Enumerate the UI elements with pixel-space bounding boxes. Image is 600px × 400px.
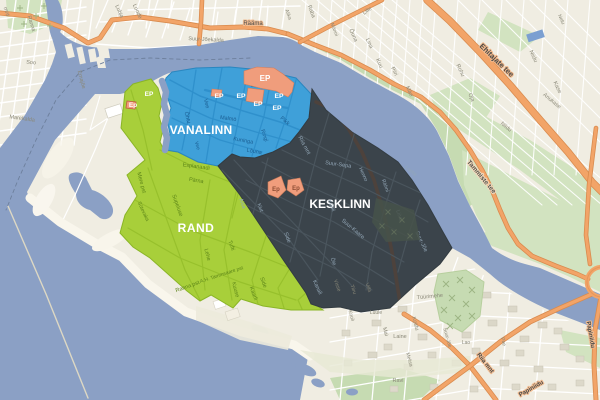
svg-text:Ep: Ep bbox=[292, 186, 300, 192]
svg-text:Soo: Soo bbox=[26, 60, 36, 67]
svg-text:EP: EP bbox=[272, 105, 282, 112]
svg-text:RAND: RAND bbox=[178, 221, 215, 235]
svg-text:Ep: Ep bbox=[272, 187, 280, 193]
svg-text:KESKLINN: KESKLINN bbox=[309, 197, 370, 211]
svg-text:EP: EP bbox=[274, 93, 284, 100]
svg-text:Lao: Lao bbox=[462, 340, 471, 346]
svg-text:Ravi: Ravi bbox=[392, 378, 403, 384]
svg-text:VANALINN: VANALINN bbox=[170, 123, 233, 137]
svg-text:EP: EP bbox=[253, 101, 263, 108]
svg-text:EP: EP bbox=[260, 74, 271, 83]
svg-text:EP: EP bbox=[145, 91, 154, 98]
svg-text:Laine: Laine bbox=[393, 334, 406, 340]
svg-text:Luule: Luule bbox=[370, 310, 382, 316]
svg-text:Ep: Ep bbox=[129, 102, 137, 109]
svg-text:Rääma: Rääma bbox=[243, 21, 263, 27]
svg-text:EP: EP bbox=[214, 93, 224, 100]
svg-text:EP: EP bbox=[236, 93, 246, 100]
